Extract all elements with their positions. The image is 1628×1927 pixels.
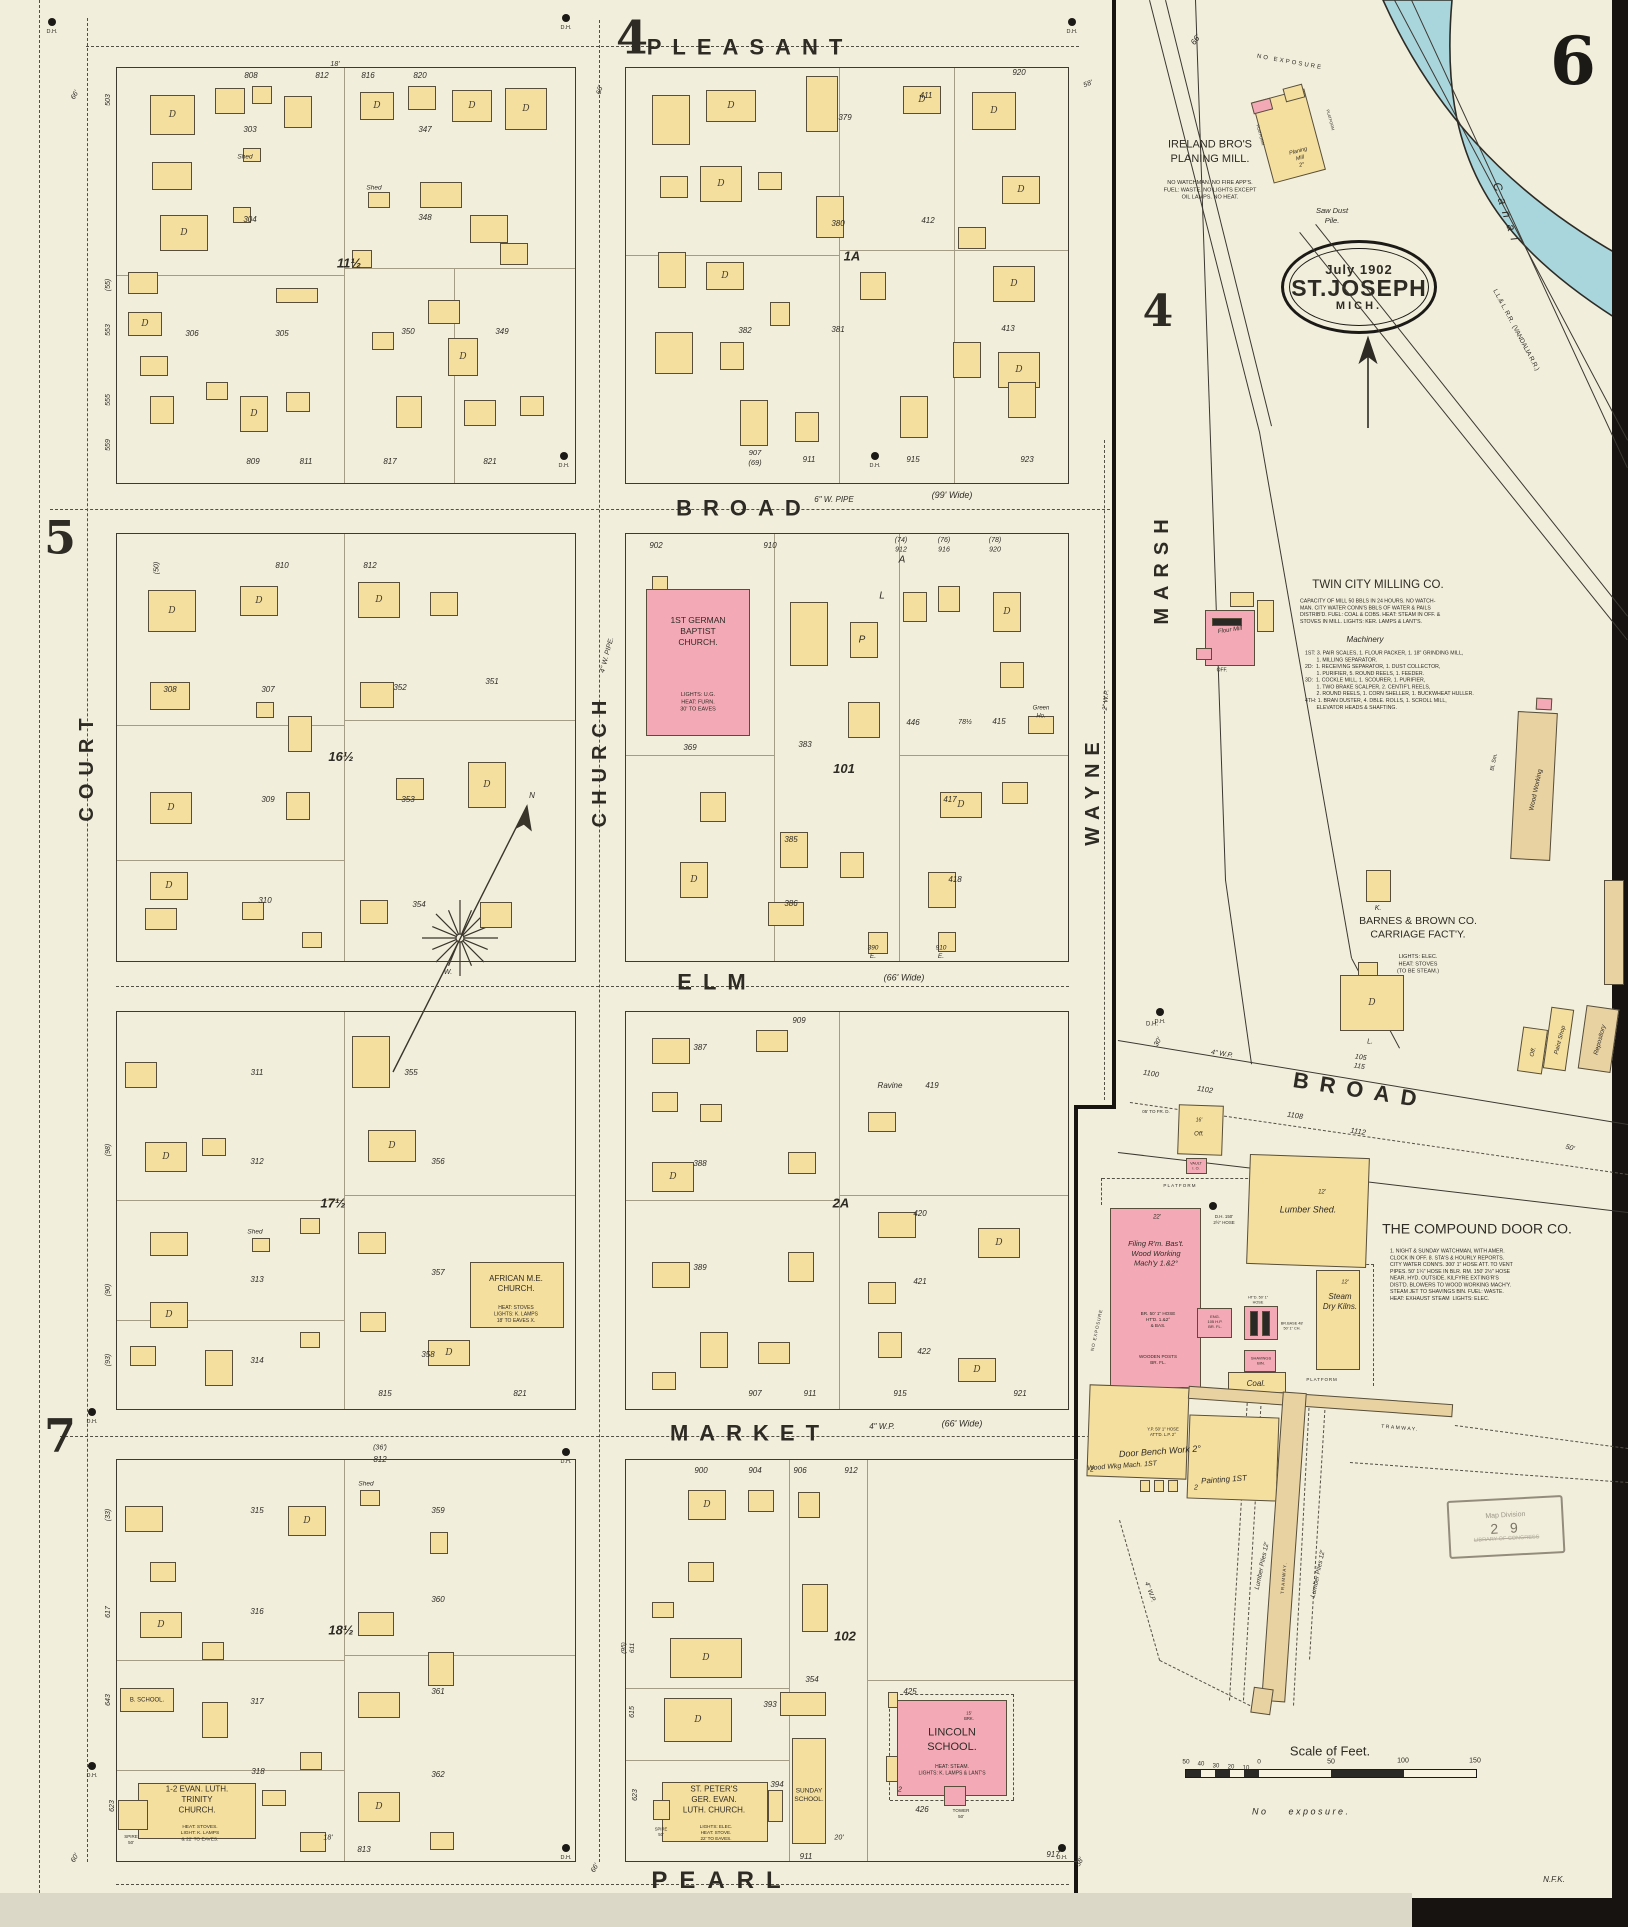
map-label: 347	[418, 125, 431, 135]
map-label: 415	[992, 717, 1005, 727]
map-line	[1078, 1105, 1116, 1109]
map-label: 4	[616, 12, 648, 72]
map-building	[652, 1038, 690, 1064]
map-label: 811	[300, 457, 313, 467]
map-building	[252, 1238, 270, 1252]
map-label: 5	[44, 512, 76, 572]
map-label: 12'	[1341, 1278, 1348, 1285]
map-building	[848, 702, 880, 738]
map-label: (36')	[373, 1443, 387, 1452]
map-building	[658, 252, 686, 288]
map-building	[360, 1490, 380, 1506]
map-building: D	[360, 92, 394, 120]
map-building	[256, 702, 274, 718]
map-label: NO WATCHMAN. NO FIRE APP'S. FUEL: WASTE.…	[1164, 179, 1257, 200]
map-building	[652, 1372, 676, 1390]
map-label: WOODEN POSTS BR. FL.	[1139, 1354, 1177, 1366]
map-label: 821	[483, 457, 496, 467]
map-label: 354	[805, 1675, 818, 1685]
map-label: 304	[243, 215, 256, 225]
map-label: 383	[798, 740, 811, 750]
map-building	[276, 288, 318, 303]
map-label: LIGHTS: ELEC. HEAT: STOVES (TO BE STEAM.…	[1397, 953, 1439, 974]
map-label: Steam Dry Kilns.	[1323, 1292, 1357, 1313]
map-building	[360, 1312, 386, 1332]
map-label: 623	[107, 1800, 116, 1812]
map-line	[60, 1436, 1110, 1437]
map-label: 2A	[833, 1196, 850, 1213]
map-building	[215, 88, 245, 114]
map-label: 623	[630, 1789, 639, 1801]
map-building	[795, 412, 819, 442]
map-building	[302, 932, 322, 948]
map-label: SHAVINGS BIN.	[1251, 1356, 1271, 1366]
map-building	[152, 162, 192, 190]
map-building: D	[468, 762, 506, 808]
map-label: 20	[1228, 1763, 1235, 1771]
map-label: 1. NIGHT & SUNDAY WATCHMAN, WITH AMER. C…	[1390, 1248, 1513, 1302]
map-building	[1002, 782, 1028, 804]
map-building: D	[688, 1490, 726, 1520]
map-label: 809	[246, 457, 259, 467]
map-line	[86, 46, 1079, 47]
map-label: (66' Wide)	[884, 972, 925, 984]
map-building: D	[145, 1142, 187, 1172]
map-building: D	[664, 1698, 732, 1742]
map-label: 385	[784, 835, 797, 845]
map-building	[868, 1112, 896, 1132]
map-label: 920	[1012, 68, 1025, 78]
map-label: 354	[412, 900, 425, 910]
map-building	[300, 1832, 326, 1852]
map-label: 389	[693, 1263, 706, 1273]
map-label: IRELAND BRO'S PLANING MILL.	[1168, 138, 1252, 167]
map-label: 917	[1046, 1850, 1059, 1860]
map-label: Off.	[1194, 1130, 1204, 1138]
map-building	[798, 1492, 820, 1518]
map-building	[653, 1800, 670, 1820]
map-building	[1358, 962, 1378, 976]
map-label: 553	[103, 324, 112, 336]
map-label: (90)	[103, 1284, 112, 1296]
map-building	[802, 1584, 828, 1632]
map-label: 22'	[1153, 1213, 1161, 1221]
map-label: 2	[1090, 1465, 1094, 1474]
map-label: 18½	[328, 1623, 353, 1640]
map-label: CHURCH	[588, 693, 614, 828]
map-building	[118, 1800, 148, 1830]
map-label: 15' BRK.	[964, 1711, 974, 1722]
map-label: 308	[163, 685, 176, 695]
map-building: D	[448, 338, 478, 376]
map-label: BROAD	[676, 496, 812, 525]
map-label: 350	[401, 327, 414, 337]
scale-bar-segment	[1215, 1770, 1230, 1777]
double-hydrant-dot	[1068, 18, 1076, 26]
map-label: 921	[1013, 1389, 1026, 1399]
map-label: 909	[792, 1016, 805, 1026]
map-label: 555	[103, 394, 112, 406]
map-building	[1316, 1270, 1360, 1370]
map-label: 4	[1143, 286, 1174, 343]
map-label: 1ST GERMAN BAPTIST CHURCH.	[670, 615, 725, 648]
map-building: D	[368, 1130, 416, 1162]
map-label: 4" W.P.	[869, 1422, 895, 1432]
map-building: D	[288, 1506, 326, 1536]
map-building	[125, 1506, 163, 1532]
map-building	[938, 586, 960, 612]
map-label: 388	[693, 1159, 706, 1169]
map-building: D	[1002, 176, 1040, 204]
map-label: N o e x p o s u r e .	[1252, 1806, 1348, 1818]
map-label: BR.BASE 48' 50' 1" CH.	[1281, 1321, 1303, 1331]
map-label: 816	[361, 71, 374, 81]
double-hydrant-label: D.H.	[561, 24, 572, 30]
map-label: PEARL	[651, 1866, 792, 1897]
map-building: D	[652, 1162, 694, 1192]
map-building	[150, 1232, 188, 1256]
map-building	[358, 1232, 386, 1254]
map-label: LIGHTS: U.G. HEAT: FURN. 30' TO EAVES	[680, 691, 716, 712]
map-label: SPIRE 50'	[655, 1827, 668, 1838]
map-label: 379	[838, 113, 851, 123]
double-hydrant-dot	[560, 452, 568, 460]
map-label: 309	[261, 795, 274, 805]
map-building	[660, 176, 688, 198]
city-block	[116, 1011, 576, 1410]
map-building	[1000, 662, 1024, 688]
map-label: Filing R'm. Bas't. Wood Working Mach'y 1…	[1128, 1239, 1184, 1268]
map-building	[288, 716, 312, 752]
map-label: 420	[913, 1209, 926, 1219]
map-building: D	[160, 215, 208, 251]
map-building	[840, 852, 864, 878]
map-building	[205, 1350, 233, 1386]
map-label: Machinery	[1347, 635, 1384, 645]
map-label: 40	[1198, 1760, 1205, 1768]
map-label: 78½	[958, 717, 972, 726]
map-label: HT'D. 50' 1" HOSE	[1248, 1295, 1268, 1305]
map-building	[430, 592, 458, 616]
map-label: D.H.	[1146, 1020, 1158, 1028]
map-label: 357	[431, 1268, 444, 1278]
map-label: 317	[250, 1697, 263, 1707]
map-label: 412	[921, 216, 934, 226]
map-label: 911	[800, 1852, 813, 1862]
map-label: 387	[693, 1043, 706, 1053]
map-label: 369	[683, 743, 696, 753]
map-label: SUNDAY SCHOOL.	[794, 1787, 823, 1804]
map-building: D	[240, 396, 268, 432]
map-label: 150	[1469, 1756, 1481, 1765]
map-building	[286, 792, 310, 820]
map-building	[480, 902, 512, 928]
map-label: Shed	[247, 1228, 262, 1236]
map-line	[1102, 1178, 1258, 1179]
scan-edge-bottom	[0, 1893, 1412, 1927]
map-building	[788, 1252, 814, 1282]
map-label: MARSH	[1150, 511, 1176, 624]
map-label: SPIRE 50'	[124, 1834, 138, 1846]
double-hydrant-dot	[562, 1844, 570, 1852]
map-label: 355	[404, 1068, 417, 1078]
map-building	[886, 1756, 898, 1782]
map-building	[720, 342, 744, 370]
map-label: 904	[748, 1466, 761, 1476]
map-label: 421	[913, 1277, 926, 1287]
map-label: TWIN CITY MILLING CO.	[1312, 578, 1443, 593]
map-label: 907 (69)	[748, 448, 761, 468]
double-hydrant-label: D.H.	[559, 462, 570, 468]
map-building	[700, 1332, 728, 1368]
map-building	[1008, 382, 1036, 418]
map-label: 907	[748, 1389, 761, 1399]
map-building	[758, 172, 782, 190]
map-building	[652, 576, 668, 590]
map-label: 559	[103, 439, 112, 451]
map-label: 307	[261, 685, 274, 695]
double-hydrant-label: D.H.	[561, 1458, 572, 1464]
map-label: 351	[485, 677, 498, 687]
map-building	[428, 300, 460, 324]
map-label: 900	[694, 1466, 707, 1476]
map-line	[599, 20, 600, 1862]
map-building: D	[150, 872, 188, 900]
map-building: D	[993, 266, 1035, 302]
map-building: D	[150, 95, 195, 135]
scan-edge-bottom-right	[1412, 1898, 1628, 1927]
map-label: 313	[250, 1275, 263, 1285]
map-label: 2	[1194, 1483, 1198, 1492]
map-label: (33)	[103, 1509, 112, 1521]
map-building	[202, 1702, 228, 1738]
map-building	[860, 272, 886, 300]
map-label: 315	[250, 1506, 263, 1516]
map-label: 359	[431, 1506, 444, 1516]
scale-bar-segment	[1259, 1770, 1332, 1777]
map-label: Lumber Shed.	[1280, 1204, 1337, 1216]
map-label: 16½	[328, 750, 353, 767]
map-building: D	[700, 166, 742, 202]
map-label: Green Ho.	[1033, 704, 1050, 720]
map-label: 17½	[320, 1196, 345, 1213]
double-hydrant-dot	[1156, 1008, 1164, 1016]
map-building: D	[148, 590, 196, 632]
map-label: P	[859, 634, 866, 647]
map-building: D	[150, 1302, 188, 1328]
map-line	[1373, 1264, 1374, 1386]
map-building: D	[1340, 975, 1404, 1031]
map-building	[888, 1692, 898, 1708]
map-label: 348	[418, 213, 431, 223]
map-label: 2" W.P.	[1101, 689, 1111, 710]
map-line	[87, 18, 88, 1862]
map-building	[652, 95, 690, 145]
map-label: 808	[244, 71, 257, 81]
title-oval: July 1902 ST.JOSEPH MICH.	[1281, 240, 1437, 334]
map-label: 617	[103, 1606, 112, 1618]
map-building	[903, 592, 927, 622]
map-label: COURT	[75, 710, 101, 821]
map-label: 50	[1327, 1757, 1335, 1766]
map-label: 314	[250, 1356, 263, 1366]
map-label: 906	[793, 1466, 806, 1476]
scale-bar-segment	[1201, 1770, 1216, 1777]
map-building	[430, 1832, 454, 1850]
map-label: 911	[803, 455, 816, 465]
map-label: 820	[413, 71, 426, 81]
map-label: PLATFORM	[1163, 1183, 1196, 1189]
map-label: N	[529, 791, 535, 801]
map-building	[740, 400, 768, 446]
double-hydrant-dot	[562, 14, 570, 22]
map-label: (78) 920	[989, 536, 1001, 554]
double-hydrant-label: D.H.	[561, 1854, 572, 1860]
map-label: 426	[915, 1805, 928, 1815]
map-building	[878, 1212, 916, 1238]
scale-bar-segment	[1186, 1770, 1201, 1777]
map-label: 360	[431, 1595, 444, 1605]
map-building	[646, 589, 750, 736]
map-label: 812	[373, 1455, 386, 1465]
double-hydrant-label: D.H.	[47, 28, 58, 34]
map-label: 503	[103, 94, 112, 106]
map-building	[958, 227, 986, 249]
map-label: 30	[1213, 1762, 1220, 1770]
map-label: K.	[1375, 903, 1382, 912]
map-label: 316	[250, 1607, 263, 1617]
map-label: 18'	[323, 1833, 332, 1842]
map-building	[652, 1262, 690, 1288]
map-building	[1257, 600, 1274, 632]
map-building	[358, 1612, 394, 1636]
map-building: D	[706, 262, 744, 290]
map-label: 100	[1397, 1756, 1409, 1765]
map-label: 390 E.	[868, 944, 879, 961]
map-label: 18'	[330, 59, 339, 68]
map-building: D	[358, 582, 400, 618]
double-hydrant-dot	[88, 1762, 96, 1770]
map-line	[39, 0, 40, 1893]
map-label: VAULT I. O.	[1190, 1161, 1202, 1171]
map-building	[368, 192, 390, 208]
double-hydrant-dot	[562, 1448, 570, 1456]
map-label: 312	[250, 1157, 263, 1167]
map-label: 311	[251, 1068, 264, 1078]
map-line	[1101, 1178, 1102, 1205]
map-label: 362	[431, 1770, 444, 1780]
map-building	[470, 215, 508, 243]
map-label: 358	[421, 1350, 434, 1360]
map-label: 11½	[337, 256, 361, 273]
map-building	[352, 1036, 390, 1088]
map-label: 902	[649, 541, 662, 551]
map-label: A	[899, 554, 906, 567]
map-label: 2	[898, 1785, 902, 1794]
map-label: ENG. 105 H.P. BR. FL.	[1207, 1314, 1222, 1330]
map-building	[655, 332, 693, 374]
map-building	[252, 86, 272, 104]
map-building	[1250, 1311, 1258, 1336]
map-building	[202, 1642, 224, 1660]
map-building: D	[128, 312, 162, 336]
map-building	[520, 396, 544, 416]
map-label: 417	[943, 795, 956, 805]
map-building	[688, 1562, 714, 1582]
map-building	[358, 1692, 400, 1718]
map-label: 50	[1182, 1758, 1189, 1766]
map-label: 615	[627, 1706, 636, 1718]
sanborn-map-sheet: July 1902 ST.JOSEPH MICH. 6 Map Division…	[0, 0, 1628, 1927]
double-hydrant-label: D.H.	[870, 462, 881, 468]
double-hydrant-dot	[1209, 1202, 1217, 1210]
map-building	[652, 1092, 678, 1112]
map-building	[1140, 1480, 1150, 1492]
sheet-number: 6	[1538, 22, 1608, 100]
map-label: (98)	[103, 1144, 112, 1156]
map-line	[1112, 0, 1116, 1105]
map-building	[780, 1692, 826, 1716]
map-building	[806, 76, 838, 132]
map-building: D	[680, 862, 708, 898]
map-building	[202, 1138, 226, 1156]
map-label: 422	[917, 1347, 930, 1357]
map-label: 1ST: 3. PAIR SCALES, 1. FLOUR PACKER, 1.…	[1305, 650, 1474, 711]
map-building: D	[358, 1792, 400, 1822]
map-label: 12'	[1318, 1188, 1326, 1196]
map-building: D	[958, 1358, 996, 1382]
map-building	[790, 602, 828, 666]
map-label: 411	[920, 91, 933, 101]
map-label: L	[879, 590, 885, 603]
map-building	[1536, 698, 1553, 711]
map-label: 812	[315, 71, 328, 81]
map-label: 386	[784, 899, 797, 909]
map-building	[1366, 870, 1391, 902]
map-label: 352	[393, 683, 406, 693]
map-label: N.F.K.	[1543, 1875, 1565, 1885]
map-label: LINCOLN SCHOOL.	[927, 1726, 977, 1755]
map-label: BR. 50' 1" HOSE HT'D. 1.&2° & BAS.	[1141, 1311, 1176, 1329]
map-building	[408, 86, 436, 110]
map-label: CAPACITY OF MILL 50 BBLS IN 24 HOURS. NO…	[1300, 598, 1440, 625]
map-building	[756, 1030, 788, 1052]
north-arrow	[1360, 338, 1376, 428]
map-label: 380	[831, 219, 844, 229]
map-building	[1230, 592, 1254, 607]
map-building	[464, 400, 496, 426]
map-label: HEAT: STEAM. LIGHTS: K. LAMPS & LANT'S	[918, 1764, 985, 1777]
map-label: OFF.	[1217, 667, 1228, 674]
map-building	[900, 396, 928, 438]
stamp-line3: LIBRARY OF CONGRESS	[1474, 1534, 1540, 1544]
map-label: 16'	[1196, 1117, 1203, 1124]
map-building	[140, 356, 168, 376]
map-building	[1168, 1480, 1178, 1492]
map-building	[1196, 648, 1212, 660]
double-hydrant-label: D.H.	[1067, 28, 1078, 34]
map-label: 310	[258, 896, 271, 906]
map-line	[116, 986, 1069, 987]
map-label: Ravine	[878, 1081, 903, 1091]
map-label: 20'	[834, 1833, 843, 1842]
map-label: 102	[834, 1629, 856, 1646]
map-label: Shed	[237, 153, 252, 161]
title-date: July 1902	[1325, 263, 1393, 276]
map-building	[372, 332, 394, 350]
map-label: 101	[833, 762, 855, 779]
map-building	[944, 1786, 966, 1806]
